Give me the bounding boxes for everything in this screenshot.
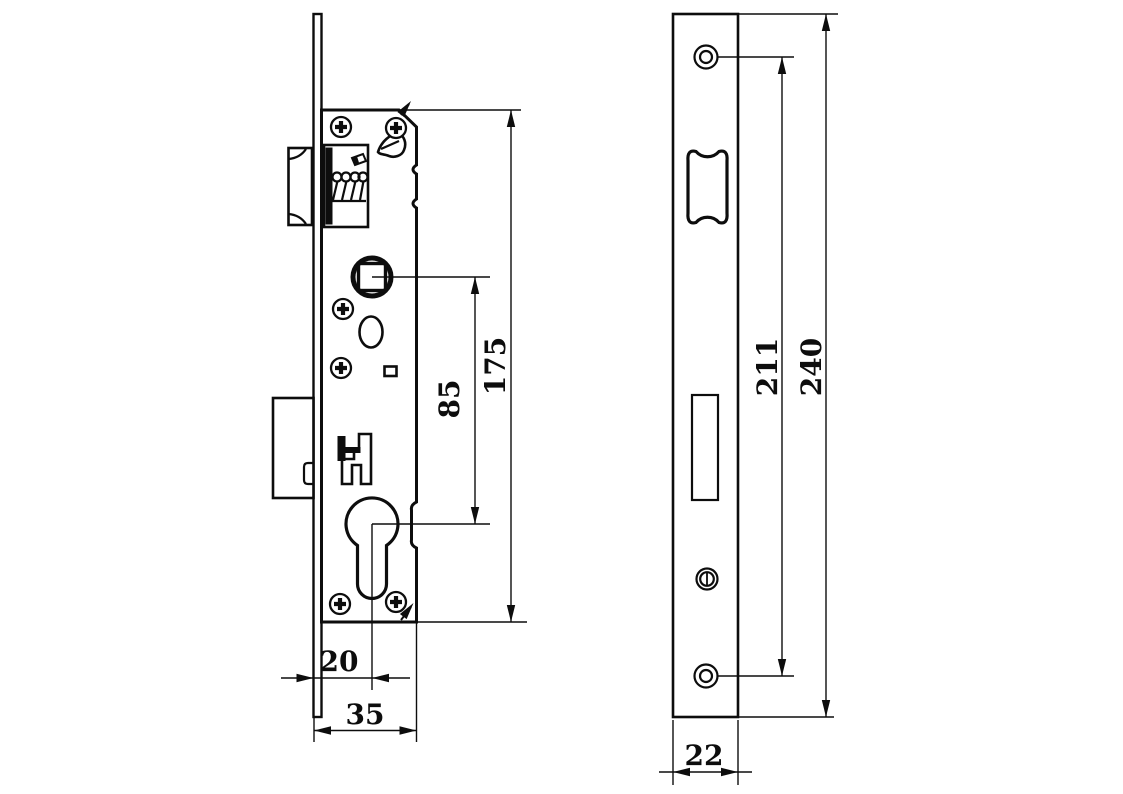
dim-label-211: 211 — [751, 338, 784, 396]
dim-spindle-to-cylinder: 85 — [433, 277, 479, 524]
dim-label-240: 240 — [795, 338, 828, 396]
oval-hole — [360, 317, 383, 348]
slotted-screw — [697, 569, 718, 590]
phillips-screw — [386, 592, 406, 612]
technical-drawing-page: 175 85 20 35 — [0, 0, 1123, 794]
phillips-screw — [330, 594, 350, 614]
faceplate-front-view: 211 240 22 — [659, 14, 838, 785]
phillips-screw — [331, 117, 351, 137]
dim-label-175: 175 — [479, 337, 512, 395]
dim-label-85: 85 — [433, 380, 466, 419]
lock-side-view: 175 85 20 35 — [273, 14, 527, 742]
dim-label-20: 20 — [320, 645, 359, 678]
phillips-screw — [331, 358, 351, 378]
dim-plate-width: 22 — [659, 720, 752, 785]
latch-spring-box — [324, 145, 368, 227]
drawing-canvas: 175 85 20 35 — [0, 0, 1123, 794]
dim-label-22: 22 — [685, 739, 724, 772]
faceplate-outline — [673, 14, 738, 717]
latch-bolt — [289, 148, 313, 225]
dim-case-height: 175 — [400, 110, 527, 622]
dim-label-35: 35 — [346, 698, 385, 731]
deadbolt — [273, 398, 314, 498]
dim-backset: 20 — [281, 645, 410, 682]
dim-case-depth: 35 — [314, 622, 417, 742]
phillips-screw — [333, 299, 353, 319]
small-rect-hole — [385, 367, 397, 377]
phillips-screw — [386, 118, 406, 138]
latch-cutout — [688, 151, 727, 223]
